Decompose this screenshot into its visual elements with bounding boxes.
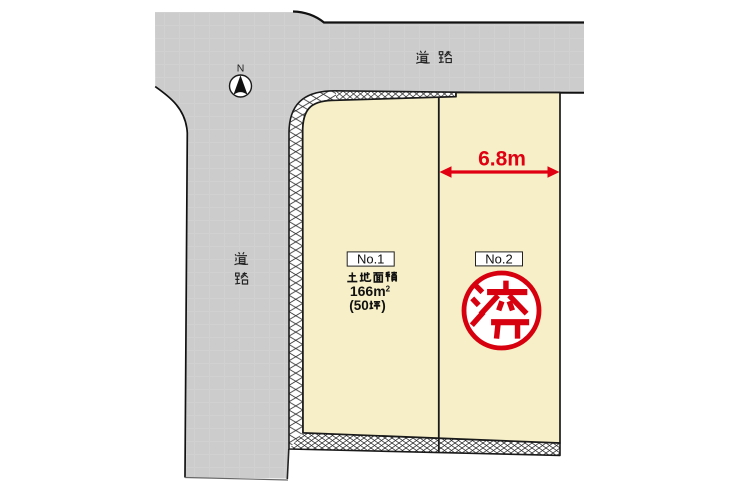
svg-text:N: N xyxy=(237,63,245,75)
svg-text:No.1: No.1 xyxy=(357,251,384,266)
svg-text:No.2: No.2 xyxy=(485,251,512,266)
svg-text:(50: (50 xyxy=(349,298,369,313)
svg-text:166m2: 166m2 xyxy=(350,283,391,299)
svg-text:6.8m: 6.8m xyxy=(478,148,526,171)
svg-text:): ) xyxy=(381,298,386,313)
